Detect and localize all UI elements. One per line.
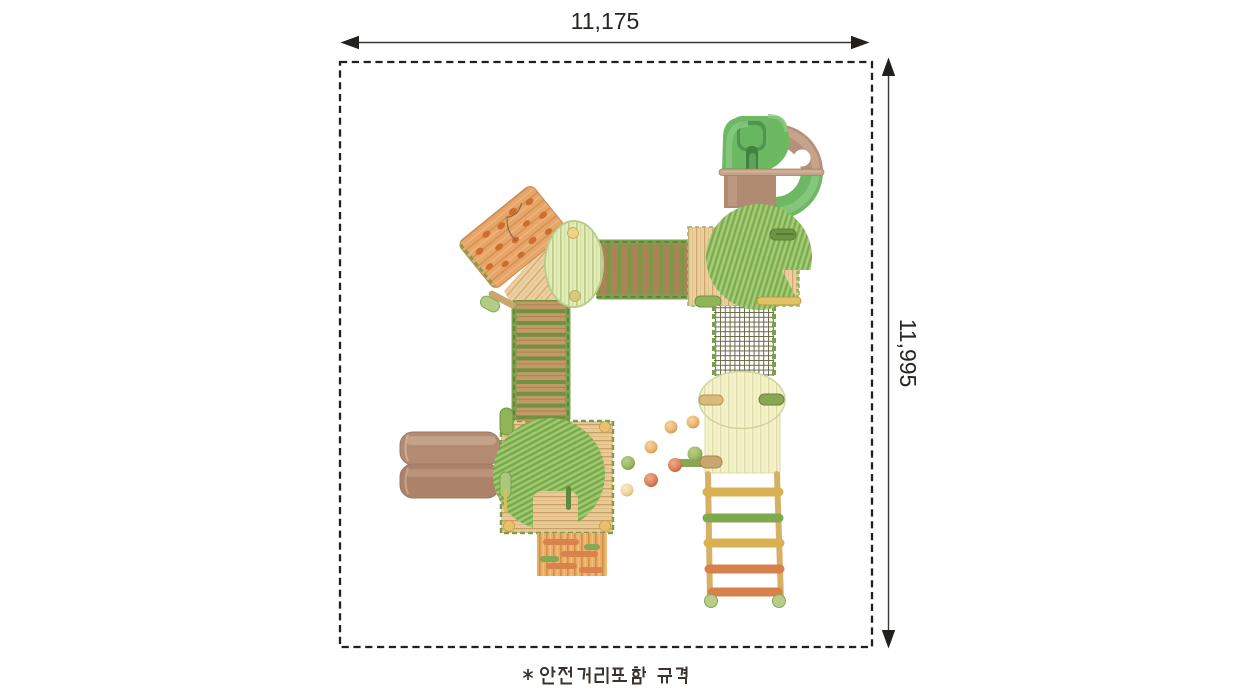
svg-text:11,175: 11,175 [571, 8, 640, 34]
svg-text:11,995: 11,995 [895, 319, 921, 388]
